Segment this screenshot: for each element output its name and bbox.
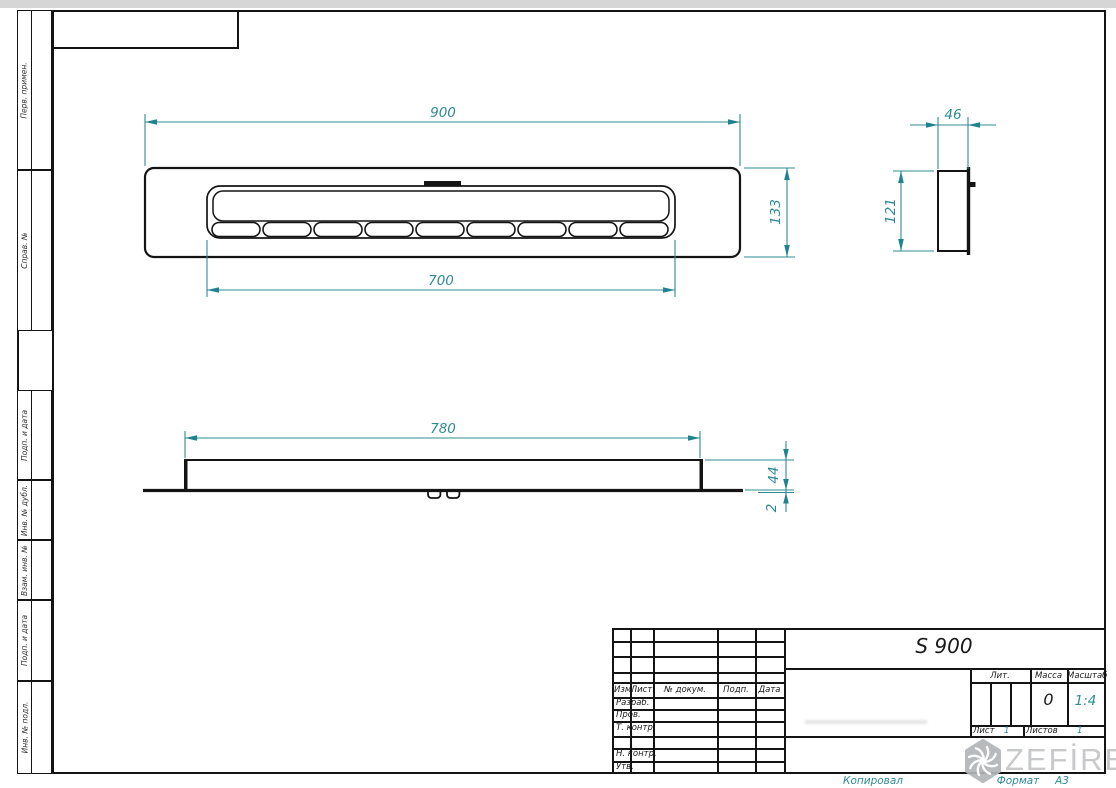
burner-hole [620, 223, 668, 237]
side-outline [938, 171, 968, 251]
tb-scale-value: 1:4 [1067, 693, 1104, 709]
burner-holes [212, 223, 668, 237]
mount-hook [428, 492, 440, 498]
side-tab [969, 182, 976, 187]
zefire-brand-text: ZEFİRE [1005, 742, 1116, 778]
tb-row-utv: Утв. [616, 762, 634, 772]
tb-row-prov: Пров. [616, 710, 641, 720]
burner-hole [569, 223, 617, 237]
tb-line [1010, 682, 1012, 725]
side-view: 46 121 [883, 107, 996, 255]
tb-line [970, 682, 1104, 684]
dim-44: 44 [766, 466, 782, 483]
tb-line [614, 656, 784, 658]
burner-hole [314, 223, 362, 237]
dim-arrow [207, 287, 219, 293]
burner-slot-outline [207, 186, 675, 238]
tb-sheets-label: Листов [1026, 726, 1058, 736]
tb-sheets-value: 1 [1077, 726, 1082, 736]
model-designation: S 900 [784, 634, 1104, 658]
tb-lit-label: Лит. [970, 671, 1030, 681]
dim-700: 700 [428, 273, 454, 289]
dim-121: 121 [883, 198, 899, 224]
tb-col-list: Лист [630, 685, 653, 695]
dim-900: 900 [430, 105, 456, 121]
tb-line [990, 682, 992, 725]
dim-lines-46 [910, 117, 996, 169]
tb-col-ndokum: № докум. [653, 685, 717, 695]
dim-arrow [663, 287, 675, 293]
tb-col-data: Дата [755, 685, 784, 695]
tb-col-izm: Изм. [614, 685, 630, 695]
tb-line [755, 630, 757, 772]
dim-lines-900 [145, 114, 740, 166]
dim-arrow [783, 493, 789, 504]
top-view: 900 700 133 [145, 105, 795, 297]
tb-line [614, 736, 1104, 738]
tb-mass-value: 0 [1030, 690, 1067, 709]
burner-tray-outline [213, 191, 669, 221]
front-view: 780 44 2 [143, 421, 794, 512]
dim-133: 133 [768, 199, 784, 225]
dim-arrow [784, 245, 790, 257]
watermark-smudge [805, 720, 927, 724]
burner-hole [212, 223, 260, 237]
front-outline [185, 460, 702, 490]
drawing-sheet: Перв. примен. Справ. № Подп. и дата Инв.… [0, 0, 1116, 788]
dim-780: 780 [430, 421, 456, 437]
burner-hole [263, 223, 311, 237]
zefire-logo-icon [958, 734, 1008, 788]
tb-line [614, 682, 784, 684]
dim-arrow [145, 119, 157, 125]
dim-arrow [898, 171, 904, 183]
burner-hole [416, 223, 464, 237]
dim-arrow [185, 435, 197, 441]
tb-row-tkontr: Т. контр. [616, 723, 656, 733]
dim-arrow [926, 122, 938, 128]
dim-arrow [728, 119, 740, 125]
tb-mass-label: Масса [1030, 671, 1067, 681]
dim-arrow [898, 239, 904, 251]
dim-arrow [688, 435, 700, 441]
tb-scale-label: Масштаб [1067, 671, 1104, 681]
dim-arrow [783, 479, 789, 490]
copied-label: Копировал [828, 775, 918, 787]
burner-hole [518, 223, 566, 237]
burner-hole [467, 223, 515, 237]
tb-line [717, 630, 719, 772]
tb-line [614, 672, 784, 674]
mount-hook [447, 492, 459, 498]
dim-arrow [968, 122, 980, 128]
dim-46: 46 [944, 107, 961, 123]
tb-line [784, 668, 1104, 670]
tb-col-podp: Подп. [717, 685, 755, 695]
tb-row-nkontr: Н. контр. [616, 749, 657, 759]
dim-2: 2 [764, 504, 780, 513]
dim-arrow [783, 449, 789, 460]
tb-row-razrab: Разраб. [616, 698, 649, 708]
slider-tab [424, 181, 461, 187]
tb-line [614, 641, 784, 643]
tb-line [614, 761, 784, 763]
dim-arrow [784, 168, 790, 180]
burner-hole [365, 223, 413, 237]
